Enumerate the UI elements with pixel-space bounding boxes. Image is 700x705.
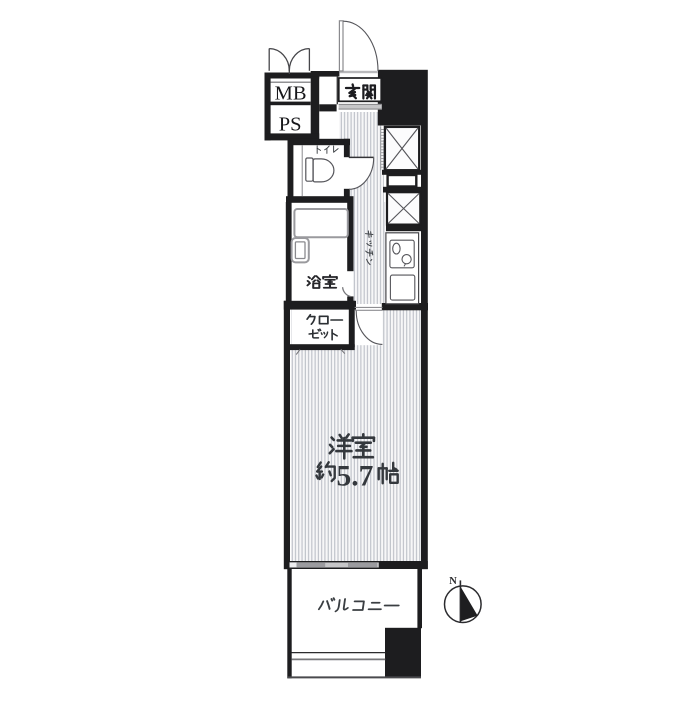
svg-text:PS: PS	[279, 114, 302, 136]
svg-text:5.7: 5.7	[337, 460, 374, 492]
svg-text:MB: MB	[275, 83, 307, 105]
svg-text:N: N	[449, 576, 457, 587]
